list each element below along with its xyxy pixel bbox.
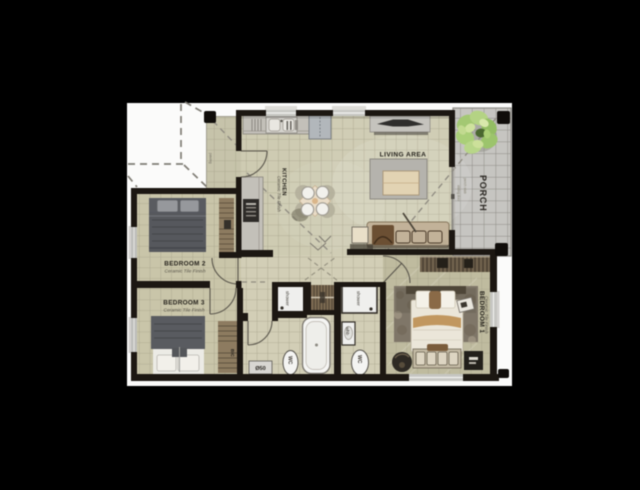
svg-text:Ceramic Tile Finish: Ceramic Tile Finish — [163, 308, 204, 314]
svg-text:sliding door: sliding door — [457, 185, 461, 202]
svg-text:Ceramic Tile Finish: Ceramic Tile Finish — [484, 296, 489, 334]
svg-text:BEDROOM 2: BEDROOM 2 — [164, 261, 206, 268]
svg-text:whb: whb — [345, 327, 350, 336]
svg-text:shower: shower — [356, 291, 361, 306]
svg-text:PORCH: PORCH — [478, 175, 488, 212]
svg-text:porch slab: porch slab — [463, 178, 467, 194]
svg-text:BEDROOM 3: BEDROOM 3 — [163, 300, 205, 307]
svg-text:shower: shower — [285, 291, 290, 306]
svg-text:LIVING AREA: LIVING AREA — [380, 152, 427, 159]
svg-text:Ceramic Tile Finish: Ceramic Tile Finish — [164, 269, 205, 275]
svg-text:Ø50: Ø50 — [255, 366, 266, 372]
svg-text:BIC: BIC — [230, 349, 235, 358]
svg-text:BEDROOM 1: BEDROOM 1 — [478, 291, 485, 333]
svg-text:Ceramic Tile Finish: Ceramic Tile Finish — [277, 176, 282, 212]
svg-text:paving: paving — [209, 153, 213, 164]
svg-text:WC: WC — [287, 356, 293, 365]
svg-text:WC: WC — [356, 355, 362, 364]
